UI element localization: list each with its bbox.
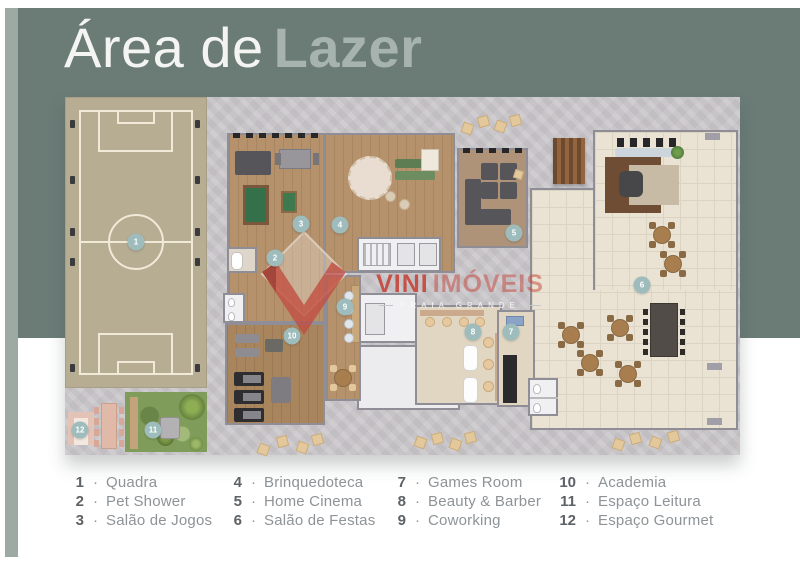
court-goal-box-top	[117, 110, 155, 124]
garden-path	[130, 397, 138, 449]
goal-post-mark	[195, 176, 200, 184]
lounge-chair-row	[617, 138, 681, 147]
legend-separator: ·	[93, 512, 98, 529]
court-goal-box-bottom	[117, 361, 155, 375]
pouf	[256, 442, 270, 456]
treadmill-deck	[243, 375, 261, 383]
tagline-text: PRAIA GRANDE	[400, 301, 520, 310]
legend-separator: ·	[251, 493, 256, 510]
gourmet-chairs-right	[119, 405, 124, 447]
marker-pet-shower: 2	[267, 250, 284, 267]
goal-post-mark	[70, 228, 75, 236]
chair	[349, 384, 356, 391]
legend-item-11: 11·Espaço Leitura	[556, 493, 713, 512]
elevator	[397, 243, 415, 266]
pouf	[493, 119, 507, 133]
marker-beauty-barber: 8	[465, 324, 482, 341]
chair	[349, 365, 356, 372]
pedicure-lounger	[463, 377, 478, 403]
legend-column-4: 10·Academia11·Espaço Leitura12·Espaço Go…	[556, 474, 713, 531]
goal-post-mark	[195, 120, 200, 128]
marker-home-cinema: 5	[506, 225, 523, 242]
chair	[668, 222, 675, 229]
recliner	[500, 182, 517, 199]
legend-label: Games Room	[428, 474, 523, 491]
salon-counter	[420, 310, 484, 316]
legend-item-3: 3·Salão de Jogos	[64, 512, 212, 531]
pouf	[448, 437, 462, 451]
chair	[679, 270, 686, 277]
left-accent-bar	[5, 8, 18, 557]
goal-post-mark	[70, 258, 75, 266]
foosball-table	[281, 191, 297, 213]
round-table-set	[577, 350, 603, 376]
room-academia	[225, 323, 325, 425]
table-top	[664, 255, 682, 273]
chair	[596, 350, 603, 357]
legend-item-1: 1·Quadra	[64, 474, 212, 493]
legend-label: Brinquedoteca	[264, 474, 363, 491]
windows-strip	[233, 133, 321, 138]
brand-primary: VINI	[376, 270, 429, 299]
legend-item-8: 8·Beauty & Barber	[386, 493, 541, 512]
legend-number: 1	[64, 474, 84, 491]
goal-post-mark	[70, 364, 75, 372]
kids-table	[385, 191, 396, 202]
bush	[189, 437, 203, 451]
recliner	[481, 163, 498, 180]
vini-imoveis-logo	[260, 230, 348, 336]
legend-item-4: 4·Brinquedoteca	[222, 474, 375, 493]
long-table-chairs	[643, 305, 648, 355]
legend-separator: ·	[415, 474, 420, 491]
gym-bench	[235, 334, 259, 343]
marker-salao-de-festas: 6	[634, 277, 651, 294]
bathrooms	[528, 378, 558, 416]
pouf	[629, 432, 642, 445]
watermark-brand: VINI IMÓVEIS	[375, 271, 545, 297]
legend-number: 2	[64, 493, 84, 510]
floor-plan: VINI IMÓVEIS PRAIA GRANDE 12345678910111…	[65, 97, 740, 455]
marker-academia: 10	[284, 328, 301, 345]
dumbbell-rack	[265, 339, 283, 352]
recliner	[481, 182, 498, 199]
legend-number: 12	[556, 512, 576, 529]
pouf	[464, 431, 477, 444]
pouf	[295, 440, 309, 454]
chair	[313, 153, 319, 165]
legend-number: 10	[556, 474, 576, 491]
chair	[596, 369, 603, 376]
gym-machine	[271, 377, 291, 403]
room-beauty-barber	[415, 305, 502, 405]
pool-table	[243, 185, 269, 225]
wc-block	[223, 293, 245, 323]
table-top	[562, 326, 580, 344]
pouf	[648, 435, 662, 449]
flyer-page: Área deLazer	[0, 0, 800, 565]
chair	[330, 384, 337, 391]
legend-number: 11	[556, 493, 576, 510]
goal-post-mark	[70, 120, 75, 128]
legend-label: Salão de Jogos	[106, 512, 212, 529]
salon-chair	[442, 317, 452, 327]
legend-separator: ·	[93, 493, 98, 510]
toilet	[228, 298, 235, 307]
stair-core	[357, 237, 441, 272]
table-top	[334, 369, 352, 387]
kids-bench	[395, 171, 435, 180]
pouf	[413, 435, 427, 449]
garden-lounge-chair	[160, 417, 180, 439]
legend-number: 8	[386, 493, 406, 510]
marker-games-room: 7	[503, 324, 520, 341]
legend-label: Academia	[598, 474, 666, 491]
chair	[558, 341, 565, 348]
gourmet-table	[101, 403, 117, 449]
legend-label: Quadra	[106, 474, 157, 491]
pouf	[509, 114, 522, 127]
legend-item-10: 10·Academia	[556, 474, 713, 493]
vent	[707, 418, 722, 425]
chair	[607, 334, 614, 341]
legend-item-9: 9·Coworking	[386, 512, 541, 531]
chair	[626, 315, 633, 322]
sofa-set	[235, 151, 271, 175]
vent	[707, 363, 722, 370]
gourmet-chairs-left	[94, 405, 99, 447]
pouf	[431, 432, 444, 445]
pouf	[460, 121, 474, 135]
legend-column-2: 4·Brinquedoteca5·Home Cinema6·Salão de F…	[222, 474, 375, 531]
treadmill-deck	[243, 393, 261, 401]
pouf	[311, 433, 324, 446]
kids-table	[399, 199, 410, 210]
legend-number: 5	[222, 493, 242, 510]
elevator	[419, 243, 437, 266]
round-table-set	[558, 322, 584, 348]
toilet	[533, 403, 541, 413]
legend-separator: ·	[415, 493, 420, 510]
legend-separator: ·	[251, 512, 256, 529]
long-dining-table	[650, 303, 678, 357]
styling-chair	[483, 337, 494, 348]
legend-separator: ·	[251, 474, 256, 491]
pouf	[477, 115, 490, 128]
gym-bench	[235, 348, 259, 357]
long-table-chairs	[680, 305, 685, 355]
windows-strip	[463, 148, 523, 153]
round-table-set	[649, 222, 675, 248]
tree	[179, 394, 205, 420]
pouf	[276, 435, 289, 448]
legend-separator: ·	[93, 474, 98, 491]
pedicure-lounger	[463, 345, 478, 371]
chair	[577, 322, 584, 329]
round-table-set	[615, 361, 641, 387]
marker-quadra: 1	[128, 234, 145, 251]
tagline-rule-right	[527, 305, 541, 306]
wood-deck	[553, 138, 585, 184]
legend-item-12: 12·Espaço Gourmet	[556, 512, 713, 531]
legend-label: Home Cinema	[264, 493, 362, 510]
round-table-set	[660, 251, 686, 277]
title-prefix: Área de	[64, 16, 264, 79]
legend-number: 3	[64, 512, 84, 529]
legend-number: 7	[386, 474, 406, 491]
goal-post-mark	[195, 258, 200, 266]
chair	[679, 251, 686, 258]
goal-post-mark	[70, 176, 75, 184]
chair	[660, 270, 667, 277]
page-title: Área deLazer	[64, 16, 422, 80]
legend-label: Salão de Festas	[264, 512, 375, 529]
legend-number: 4	[222, 474, 242, 491]
marker-espaco-leitura: 11	[145, 422, 162, 439]
coworking-table-set	[330, 365, 356, 391]
marker-salao-de-jogos: 3	[293, 216, 310, 233]
armchair	[619, 171, 643, 197]
legend-label: Pet Shower	[106, 493, 186, 510]
toilet	[228, 312, 235, 321]
chair	[634, 361, 641, 368]
title-emphasis: Lazer	[274, 16, 423, 79]
legend-item-5: 5·Home Cinema	[222, 493, 375, 512]
legend-label: Beauty & Barber	[428, 493, 541, 510]
legend-column-3: 7·Games Room8·Beauty & Barber9·Coworking	[386, 474, 541, 531]
chair	[275, 153, 281, 165]
chair	[668, 241, 675, 248]
legend-label: Espaço Leitura	[598, 493, 701, 510]
legend-separator: ·	[585, 493, 590, 510]
pet-tub	[231, 252, 243, 270]
goal-post-mark	[195, 228, 200, 236]
legend-item-7: 7·Games Room	[386, 474, 541, 493]
treadmill	[234, 372, 264, 386]
pouf	[611, 437, 625, 451]
lounge-sofa-row	[615, 148, 673, 157]
legend-separator: ·	[415, 512, 420, 529]
tagline-rule-left	[379, 305, 393, 306]
table-top	[611, 319, 629, 337]
legend-label: Coworking	[428, 512, 501, 529]
table-top	[581, 354, 599, 372]
chair	[577, 341, 584, 348]
legend-number: 9	[386, 512, 406, 529]
treadmill	[234, 390, 264, 404]
chair	[577, 369, 584, 376]
legend-separator: ·	[585, 474, 590, 491]
treadmill-deck	[243, 411, 261, 419]
legend-item-6: 6·Salão de Festas	[222, 512, 375, 531]
salon-chair	[425, 317, 435, 327]
stairs	[363, 243, 391, 266]
marker-espaco-gourmet: 12	[72, 422, 89, 439]
legend-column-1: 1·Quadra2·Pet Shower3·Salão de Jogos	[64, 474, 212, 531]
chair	[649, 241, 656, 248]
cinema-sofa	[465, 209, 511, 225]
toy-cabinet	[421, 149, 439, 171]
bathroom-divider	[530, 397, 558, 399]
toilet	[533, 384, 541, 394]
chair	[615, 380, 622, 387]
styling-chair	[483, 381, 494, 392]
legend-number: 6	[222, 512, 242, 529]
media-wall	[503, 355, 517, 403]
marker-brinquedoteca: 4	[332, 217, 349, 234]
legend-item-2: 2·Pet Shower	[64, 493, 212, 512]
pouf	[667, 430, 680, 443]
marker-coworking: 9	[337, 299, 354, 316]
legend-label: Espaço Gourmet	[598, 512, 713, 529]
table-top	[653, 226, 671, 244]
goal-post-mark	[195, 364, 200, 372]
dining-table	[279, 149, 311, 169]
room-pet-shower	[227, 247, 257, 273]
table-top	[619, 365, 637, 383]
vent	[705, 133, 720, 140]
treadmill	[234, 408, 264, 422]
watermark-tagline: PRAIA GRANDE	[371, 301, 549, 310]
plant	[671, 146, 684, 159]
round-table-set	[607, 315, 633, 341]
styling-chair	[483, 359, 494, 370]
legend-separator: ·	[585, 512, 590, 529]
chair	[634, 380, 641, 387]
chair	[626, 334, 633, 341]
brand-secondary: IMÓVEIS	[433, 270, 544, 299]
